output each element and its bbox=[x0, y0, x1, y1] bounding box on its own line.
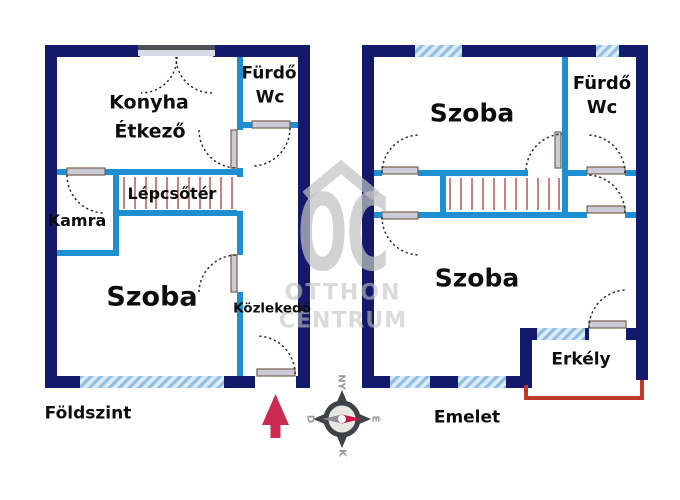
compass-label-west: NY bbox=[336, 374, 347, 390]
door-arc bbox=[141, 57, 177, 93]
window bbox=[390, 376, 430, 388]
door-panel bbox=[257, 369, 295, 376]
north-arrow-icon bbox=[262, 394, 289, 438]
balcony-railing bbox=[526, 380, 642, 398]
floor-plan-canvas: OC OTTHON CENTRUM Konyha Étkező Fürdő Wc… bbox=[0, 0, 680, 500]
door-arc bbox=[252, 128, 290, 166]
door-panel bbox=[252, 121, 290, 128]
compass-label-east: K bbox=[337, 449, 348, 457]
door-panel bbox=[231, 130, 237, 168]
door-panel bbox=[67, 168, 105, 175]
door-arc bbox=[382, 217, 418, 255]
window bbox=[458, 376, 506, 388]
door-panel bbox=[231, 255, 237, 292]
window bbox=[537, 328, 585, 340]
window bbox=[80, 376, 224, 388]
upper-floor-plan bbox=[362, 45, 648, 398]
compass-icon bbox=[313, 390, 371, 448]
door-panel bbox=[587, 167, 625, 174]
door-panel bbox=[555, 132, 561, 168]
double-door-lintel bbox=[138, 45, 215, 50]
window bbox=[415, 45, 462, 57]
floor-plan-drawing bbox=[0, 0, 680, 500]
door-arc bbox=[176, 57, 212, 93]
stairs-ground bbox=[124, 177, 232, 209]
window bbox=[596, 45, 619, 57]
door-panel bbox=[382, 212, 418, 219]
compass-label-south: D bbox=[305, 415, 316, 423]
door-panel bbox=[587, 206, 625, 213]
door-panel bbox=[589, 321, 626, 328]
ground-floor-plan bbox=[45, 45, 310, 388]
stairs-upper bbox=[450, 178, 559, 210]
door-arc bbox=[67, 175, 105, 213]
door-panel bbox=[382, 167, 418, 174]
door-arc bbox=[257, 336, 295, 374]
compass-label-north: É bbox=[370, 416, 381, 423]
